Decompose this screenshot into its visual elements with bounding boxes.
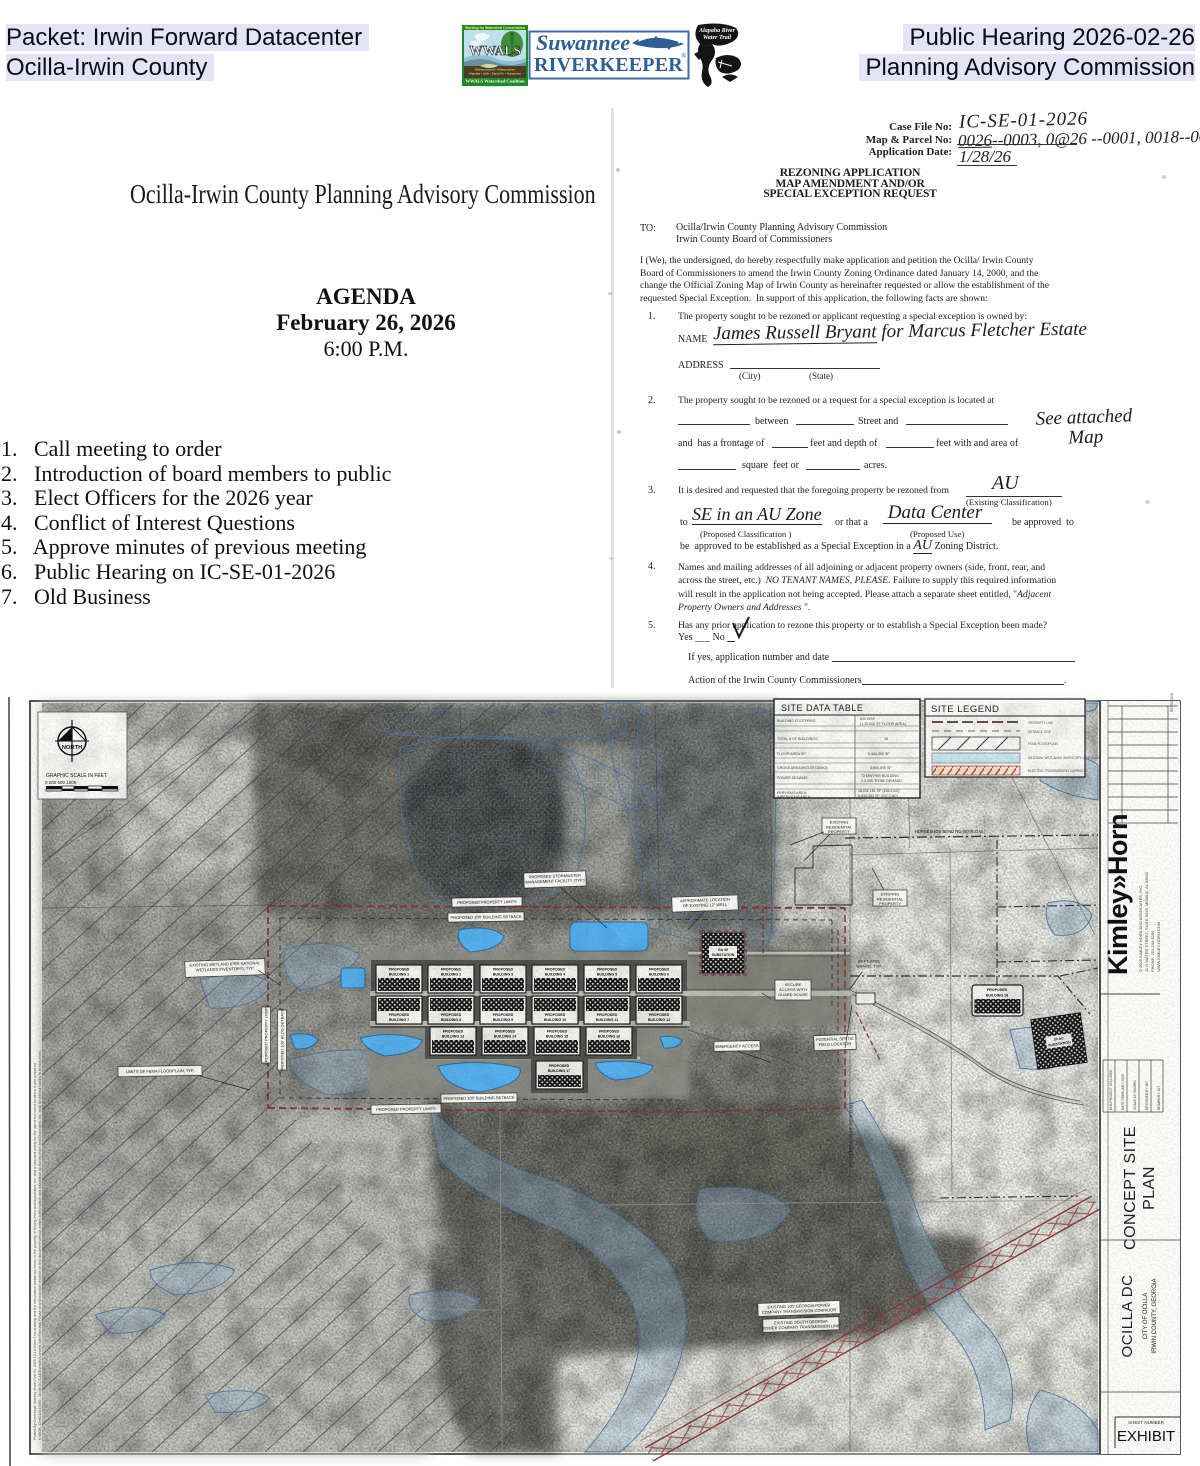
svg-text:WWALS: WWALS <box>469 43 521 58</box>
svg-text:®: ® <box>681 52 687 60</box>
svg-text:RIVERKEEPER: RIVERKEEPER <box>534 54 683 76</box>
svg-text:www.wwals.net: www.wwals.net <box>485 84 506 88</box>
svg-text:Alapaha • Little • Santa Fe •: Alapaha • Little • Santa Fe • Suwannee <box>469 72 521 76</box>
svg-text:Working for Watershed Conserva: Working for Watershed Conservation <box>465 26 525 30</box>
svg-text:Suwannee: Suwannee <box>536 30 630 55</box>
svg-text:Water Trail: Water Trail <box>703 35 731 41</box>
svg-text:Alapaha River: Alapaha River <box>698 28 736 34</box>
